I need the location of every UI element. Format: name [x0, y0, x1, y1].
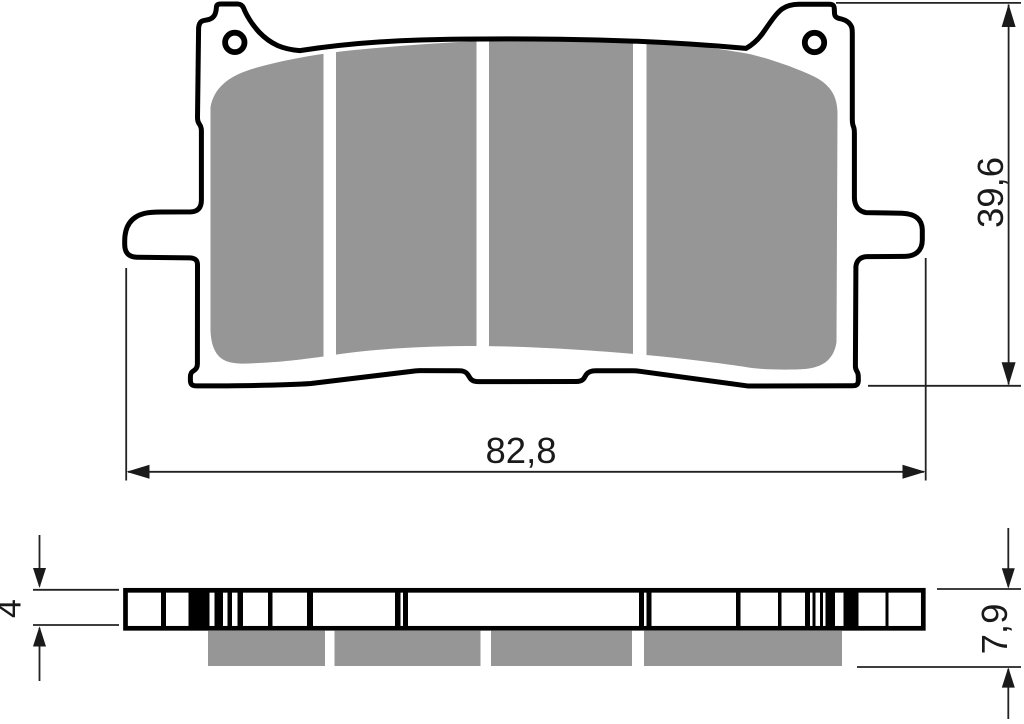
- svg-text:4: 4: [0, 599, 29, 618]
- svg-text:7,9: 7,9: [974, 604, 1015, 655]
- svg-text:39,6: 39,6: [970, 157, 1011, 228]
- svg-text:82,8: 82,8: [485, 430, 556, 471]
